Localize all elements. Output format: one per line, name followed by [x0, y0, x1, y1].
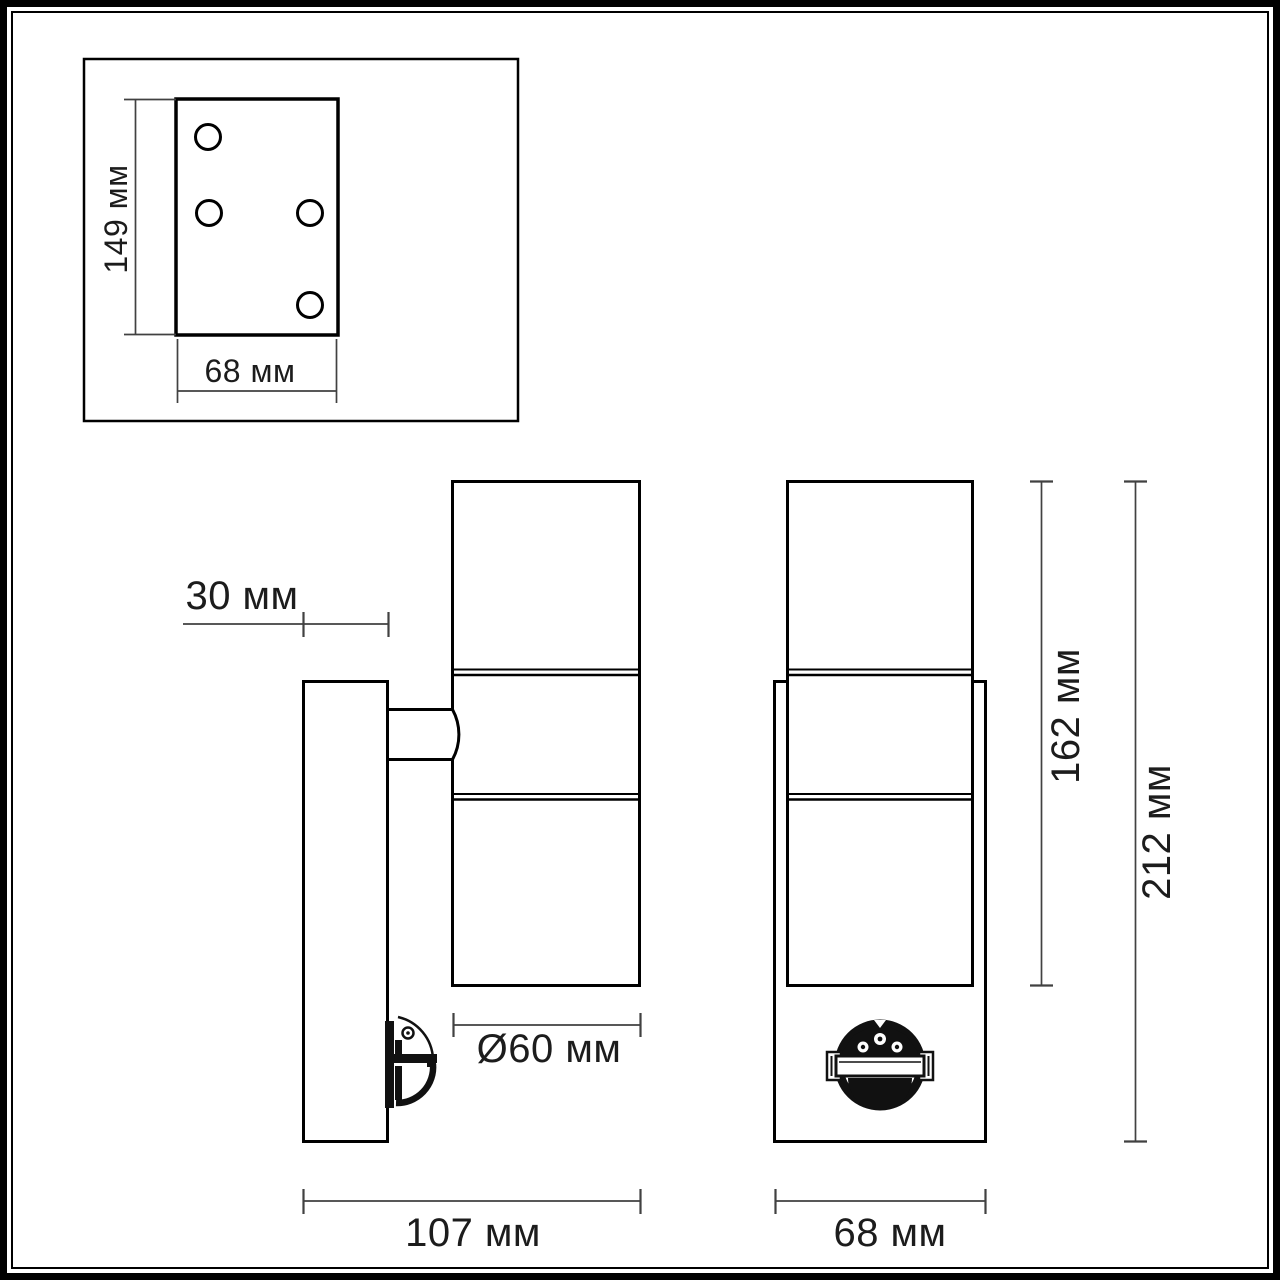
dim-label-mounting-plate-width: 68 мм — [205, 355, 296, 387]
drawing-canvas — [0, 0, 1280, 1280]
technical-drawing-page: 149 мм 68 мм 30 мм Ø60 мм 107 мм 162 мм … — [0, 0, 1280, 1280]
wall-plate-side — [304, 682, 388, 1142]
dim-label-front-width: 68 мм — [833, 1213, 946, 1253]
dim-label-wall-plate-depth: 30 мм — [185, 576, 298, 616]
motion-sensor-side — [385, 1017, 437, 1108]
mounting-hole — [196, 125, 221, 150]
dim-label-total-depth: 107 мм — [405, 1213, 541, 1253]
mounting-plate-inset — [84, 59, 518, 421]
mounting-hole — [197, 201, 222, 226]
mounting-hole — [298, 293, 323, 318]
mounting-bracket-side — [388, 710, 459, 760]
dim-label-mounting-plate-height: 149 мм — [100, 164, 132, 273]
dim-label-body-diameter: Ø60 мм — [477, 1029, 622, 1069]
front-view — [775, 481, 1148, 1214]
dim-label-total-height: 212 мм — [1137, 764, 1177, 900]
dim-label-body-height: 162 мм — [1046, 648, 1086, 784]
mounting-hole — [298, 201, 323, 226]
lamp-body-front — [788, 482, 973, 986]
lamp-body-side — [453, 482, 640, 986]
